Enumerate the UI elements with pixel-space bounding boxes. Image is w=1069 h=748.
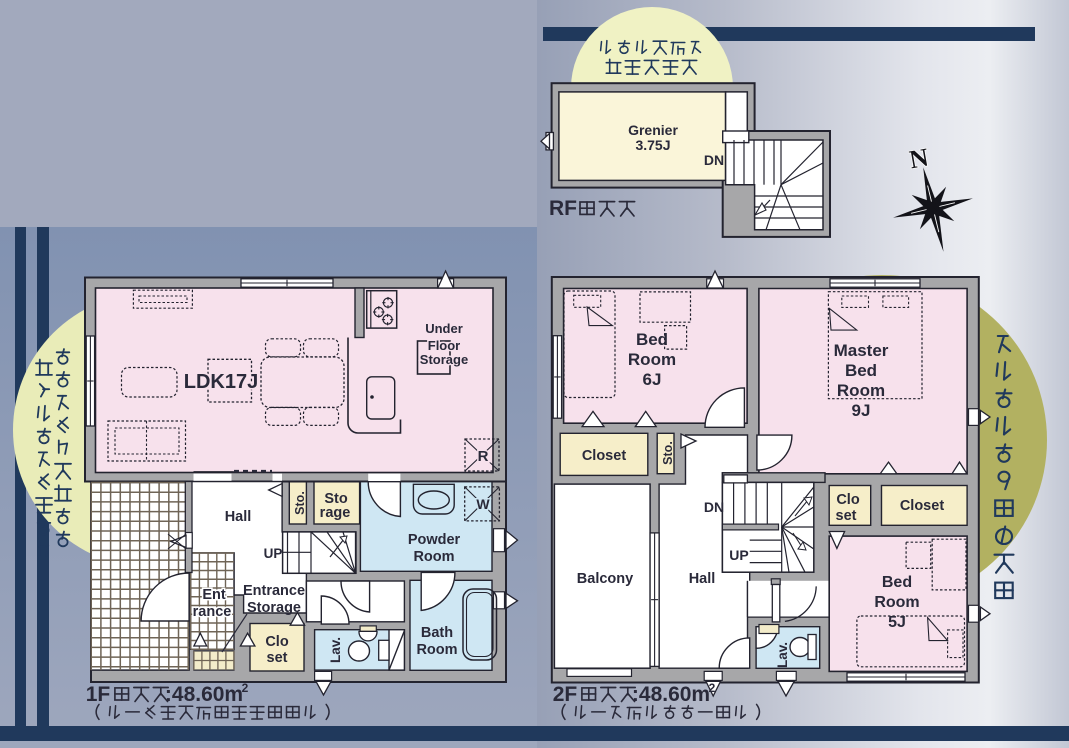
svg-text:2F: 2F [553, 683, 578, 706]
svg-text:RF: RF [549, 197, 577, 220]
svg-text:5J: 5J [888, 614, 906, 631]
svg-text:Sto.: Sto. [293, 491, 307, 515]
svg-text:Bed: Bed [845, 361, 877, 380]
svg-text:6J: 6J [643, 370, 662, 389]
svg-text:Lav.: Lav. [775, 642, 790, 668]
svg-text:Grenier: Grenier [628, 122, 678, 138]
svg-text:Closet: Closet [900, 498, 944, 514]
svg-text:Hall: Hall [225, 509, 252, 525]
svg-text:Bed: Bed [636, 330, 668, 349]
svg-text:W: W [476, 496, 490, 512]
svg-text:Storage: Storage [247, 600, 301, 616]
svg-text:Under: Under [425, 321, 463, 336]
svg-text:Room: Room [416, 642, 457, 658]
svg-text:DN: DN [704, 499, 724, 515]
svg-text:Floor: Floor [428, 338, 461, 353]
svg-text:Room: Room [628, 350, 676, 369]
svg-text:Room: Room [413, 549, 454, 565]
svg-text:rage: rage [320, 505, 351, 521]
svg-text:set: set [836, 508, 857, 524]
svg-text:Balcony: Balcony [577, 571, 633, 587]
svg-text:UP: UP [729, 547, 748, 563]
svg-text:Room: Room [837, 381, 885, 400]
svg-text:Sto.: Sto. [661, 441, 675, 465]
svg-text:Clo: Clo [836, 492, 860, 508]
svg-text:DN: DN [704, 152, 724, 168]
svg-text:LDK17J: LDK17J [184, 371, 258, 393]
svg-text:rance: rance [193, 604, 232, 620]
svg-text:Bed: Bed [882, 574, 912, 591]
svg-text:9J: 9J [852, 401, 871, 420]
svg-text:2: 2 [709, 681, 716, 695]
svg-text:Room: Room [874, 594, 919, 611]
svg-text:Entrance: Entrance [243, 583, 305, 599]
svg-text:UP: UP [264, 546, 283, 561]
svg-text:Powder: Powder [408, 532, 461, 548]
svg-text:R: R [478, 448, 489, 465]
svg-text:Lav.: Lav. [328, 637, 343, 663]
svg-text:set: set [267, 650, 288, 666]
svg-text::48.60m: :48.60m [165, 683, 243, 706]
svg-text::48.60m: :48.60m [632, 683, 710, 706]
svg-text:3.75J: 3.75J [635, 137, 670, 153]
svg-text:Bath: Bath [421, 625, 453, 641]
svg-text:Closet: Closet [582, 448, 626, 464]
svg-text:2: 2 [242, 681, 249, 695]
svg-text:Clo: Clo [265, 634, 289, 650]
svg-text:1F: 1F [86, 683, 111, 706]
svg-text:Master: Master [834, 341, 889, 360]
svg-text:Storage: Storage [420, 352, 468, 367]
svg-text:Ent: Ent [202, 587, 226, 603]
svg-text:Hall: Hall [689, 571, 716, 587]
